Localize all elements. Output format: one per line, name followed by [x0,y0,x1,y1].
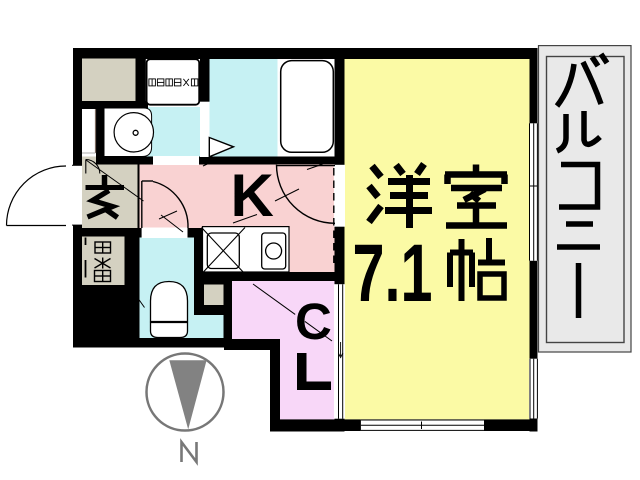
svg-text:K: K [231,162,274,229]
svg-text:7.1: 7.1 [353,228,433,319]
svg-text:C: C [295,293,332,350]
